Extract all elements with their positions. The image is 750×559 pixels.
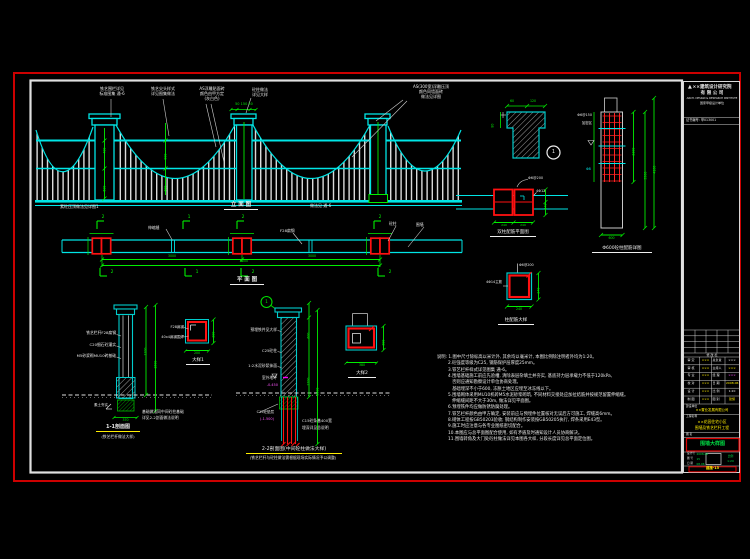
cad-viewport: 铁艺围栏详见 标准图集 通-6 铁艺尖头样式 详见图集做法 AS浮雕贴面砖 颜色… bbox=[0, 0, 750, 559]
plan-mark-top-2: 1 bbox=[185, 215, 193, 220]
elev-label-3-line3: (灰白色) bbox=[190, 97, 234, 102]
s22-below-1: C15砼垫层 bbox=[240, 410, 274, 414]
sign-value-3: ××× bbox=[701, 374, 711, 377]
ce-dim-b: 600 bbox=[601, 237, 622, 241]
plan-note-col: 砼柱 bbox=[389, 222, 407, 226]
s22-below-2: (-1.500) bbox=[240, 417, 274, 421]
s22-level-mark: -0.450 bbox=[252, 383, 278, 387]
elev-dim-h1: 400 bbox=[103, 148, 107, 154]
plan-title: 平 面 图 bbox=[230, 277, 264, 285]
fence-plan bbox=[62, 221, 462, 276]
sign-rlabel-5: 比 例 bbox=[713, 390, 725, 393]
ce-note-3: Φ8 bbox=[586, 168, 598, 172]
s22-title: 2-2剖面图(中间砼柱做法大样) bbox=[246, 447, 342, 454]
d2-dim-r: 380 bbox=[382, 340, 386, 346]
sign-rlabel-1: 总负责 bbox=[713, 359, 725, 362]
d3-dim-b: 240 bbox=[508, 308, 530, 312]
s22-dim-v2: 2700 bbox=[307, 378, 311, 386]
plan-note-mid: F28扁钢 bbox=[280, 229, 308, 233]
sign-rvalue-4: 2008.06 bbox=[726, 382, 738, 385]
rebar-plan bbox=[456, 180, 568, 225]
notes-line-1: 2.砼强度等级为C25, 钢筋保护层厚度25mm。 bbox=[448, 362, 537, 367]
s22-callout-number: 1 bbox=[263, 300, 270, 305]
s11-dim-b: 370 bbox=[114, 419, 137, 423]
sign-value-2: ××× bbox=[701, 367, 711, 370]
notes-line-11: 9.施工时应注意与各专业图纸密切配合。 bbox=[448, 425, 525, 430]
coping-callout-number: 1 bbox=[548, 150, 559, 156]
institute-name-2: 有 限 公 司 bbox=[686, 91, 738, 96]
column-rebar-elevation bbox=[588, 96, 656, 237]
rp-dim-r: 240 bbox=[544, 204, 548, 210]
sign-value-6: ××× bbox=[701, 398, 711, 401]
sign-rlabel-3: 经 理 bbox=[713, 374, 725, 377]
s22-label-4: 室外地坪 bbox=[221, 376, 277, 380]
notes-line-2: 3.铁艺栏杆样式详见图集 通-6。 bbox=[448, 369, 509, 374]
d1-title: 大样1 bbox=[186, 358, 210, 365]
ce-note-2: 加密区 bbox=[568, 122, 592, 126]
sign-rvalue-3: ××× bbox=[726, 374, 738, 377]
coping-dim-l: 80 bbox=[491, 124, 495, 128]
plan-mark-top-3: 2 bbox=[239, 215, 247, 220]
sign-label-4: 校 对 bbox=[688, 382, 699, 385]
elev-dim-m1: 900 bbox=[164, 154, 168, 160]
tbl-scale-label: 比例 bbox=[723, 455, 738, 458]
plan-joint-note: 伸缩缝 bbox=[148, 226, 182, 230]
s11-below-note: 素土夯实 bbox=[94, 403, 118, 407]
tbl-label-3: 日 期 bbox=[687, 463, 696, 466]
s11-title: 1-1剖面图 bbox=[96, 425, 140, 432]
notes-line-8: 6.预埋铁件均应做防锈防腐处理。 bbox=[448, 406, 512, 411]
rp-note-1: Φ6@200 bbox=[528, 176, 554, 180]
rp-dim-b1: 240 bbox=[496, 224, 512, 227]
d2-title: 大样2 bbox=[348, 371, 376, 378]
sheet-number: 建施-15 bbox=[689, 467, 736, 471]
s11-label-2: C20细石砼灌实 bbox=[52, 343, 116, 347]
s11-label-3: M5砂浆砌MU10砖基础 bbox=[40, 354, 116, 358]
d3-note-2: 4Φ14主筋 bbox=[470, 281, 502, 285]
s11-label-1: 铁艺栏杆F28扁钢 bbox=[52, 331, 116, 335]
elev-label-2-line2: 详见图集做法 bbox=[140, 92, 186, 97]
rp-title: 双柱配筋平面图 bbox=[490, 230, 536, 237]
d1-dim-r: 200 bbox=[212, 332, 216, 338]
sign-label-2: 审 核 bbox=[688, 367, 699, 370]
notes-line-6: 5.围墙砌体采用MU10机砖M5水泥砂浆砌筑, 不同材料交接处应加拉结筋并按规范… bbox=[448, 394, 628, 399]
d1-dim-b: 200 bbox=[188, 352, 206, 356]
d3-note-1: Φ6@200 bbox=[519, 264, 545, 268]
ce-dim-r2: 3500 bbox=[644, 172, 648, 180]
s22-label-3: 1:2水泥砂浆抹面 bbox=[221, 364, 277, 368]
column-section-detail bbox=[503, 264, 541, 309]
elev-dim-m2: 300 bbox=[164, 186, 168, 192]
sign-rvalue-1: ××× bbox=[726, 359, 738, 362]
tbl-label-1: 设计号 bbox=[687, 453, 696, 456]
s22-note-2: 埋深详见总说明 bbox=[302, 426, 352, 430]
sign-rlabel-6: 图 别 bbox=[713, 398, 725, 401]
project-label: 工程名称 bbox=[686, 415, 738, 418]
plan-mark-top-1: 2 bbox=[99, 215, 107, 220]
elev-label-5-line3: 做法见详图 bbox=[396, 95, 466, 100]
elev-ground-note: 素砼压顶做法见详图1 bbox=[60, 205, 142, 210]
plan-dim-1: 3000 bbox=[160, 255, 184, 259]
sign-label-5: 设 计 bbox=[688, 390, 699, 393]
plan-mark-bot-1: 2 bbox=[108, 270, 116, 275]
sign-label-1: 审 定 bbox=[688, 359, 699, 362]
coping-dim-a: 60 bbox=[505, 100, 519, 104]
s22-dim-v3: 3300 bbox=[316, 388, 320, 396]
plan-note-wall: 围墙 bbox=[416, 223, 434, 227]
sign-rlabel-4: 日 期 bbox=[713, 382, 725, 385]
project-name-2: 围墙及铁艺栏杆工程 bbox=[686, 426, 738, 430]
sign-value-1: ××× bbox=[701, 359, 711, 362]
s11-note-2: 详见2-2剖面做法说明 bbox=[142, 416, 214, 420]
institute-name-1: ××建筑设计研究院 bbox=[686, 85, 738, 90]
detail-2 bbox=[345, 314, 386, 365]
d3-dim-r: 240 bbox=[537, 288, 541, 294]
d3-title: 柱配筋大样 bbox=[498, 318, 534, 325]
tbl-scale-value: 1:20 bbox=[723, 460, 738, 463]
plan-mark-bot-4: 2 bbox=[386, 270, 394, 275]
coping-dim-b: 120 bbox=[525, 100, 541, 104]
rp-dim-b2: 240 bbox=[515, 224, 531, 227]
s11-note-1: 基础做法同中间砼柱基础 bbox=[142, 410, 214, 414]
ce-note-1: Φ6@150 bbox=[568, 114, 592, 118]
sign-rlabel-2: 主持人 bbox=[713, 367, 725, 370]
sign-label-3: 专 业 bbox=[688, 374, 699, 377]
project-name-1: ××花园住宅小区 bbox=[686, 420, 738, 424]
ce-title: Φ600砼柱配筋详图 bbox=[592, 246, 652, 253]
elev-label-4-line2: 详见大样 bbox=[243, 93, 277, 98]
sign-value-5: ××× bbox=[701, 390, 711, 393]
elev-cap-dim: 50 150 50 bbox=[229, 102, 259, 106]
institute-cert: 国家甲级设计单位 bbox=[686, 102, 738, 105]
plan-mark-bot-3: 2 bbox=[249, 270, 257, 275]
s11-subtitle: (铁艺栏杆做法大样) bbox=[88, 435, 148, 439]
s11-dim-v2: 1500 bbox=[154, 361, 158, 369]
notes-line-4: 否则应通知勘察设计单位协商处理。 bbox=[448, 381, 521, 386]
cad-sheet-linework bbox=[0, 0, 750, 559]
drawing-name: 围墙大样图 bbox=[687, 442, 738, 448]
owner-name: ××置业发展有限公司 bbox=[686, 409, 738, 413]
revision-header: 修 改 栏 bbox=[686, 354, 738, 357]
sign-rvalue-5: 1:20 bbox=[726, 390, 738, 393]
tbl-value-2: 15 bbox=[697, 458, 707, 461]
notes-line-13: 11.围墙转角及大门处砼柱做法详见本图各大样, 分段长度详见总平面定位图。 bbox=[448, 438, 595, 443]
rp-note-2: 4Φ12 bbox=[536, 189, 558, 193]
s22-label-1: 预埋铁件见大样 bbox=[221, 328, 277, 332]
ce-dim-r1: 2100 bbox=[632, 148, 636, 156]
elevation-title: 立 面 图 bbox=[224, 202, 258, 210]
ce-dim-r3: 4100 bbox=[653, 166, 657, 174]
sign-label-6: 制 图 bbox=[688, 398, 699, 401]
sign-rvalue-2: ××× bbox=[726, 367, 738, 370]
s22-note-1: C15砼条基400宽 bbox=[302, 419, 352, 423]
tbl-value-1: 2008-06 bbox=[697, 453, 707, 456]
notes-line-9: 7.铁艺栏杆颜色由甲方确定, 安装前应与预埋件位置核对无误后方可施工, 焊缝高6… bbox=[448, 413, 615, 418]
sign-value-4: ××× bbox=[701, 382, 711, 385]
plan-mark-bot-2: 1 bbox=[193, 270, 201, 275]
notes-line-12: 10.本图应与总平面图配合使用, 如有矛盾及时通知设计人员协商解决。 bbox=[448, 432, 582, 437]
s22-subtit le: (铁艺栏杆与砼柱做法需根据现场实际情况予以调整) bbox=[234, 456, 352, 460]
elev-right-note: 做法见 通-6 bbox=[310, 204, 360, 209]
license-number: 证书编号: 甲013001 bbox=[686, 119, 738, 123]
elev-label-1-line2: 标准图集 通-6 bbox=[90, 92, 134, 97]
plan-dim-2: 3000 bbox=[300, 255, 324, 259]
d1-label-1: F28扁钢 bbox=[144, 325, 184, 329]
plan-dim-3: 6000 bbox=[232, 260, 256, 264]
s11-dim-v1: 1200 bbox=[144, 348, 148, 356]
notes-line-5: 基础埋深不小于600, 冻胀土地区应埋至冰冻线以下。 bbox=[448, 388, 553, 393]
d2-dim-b: 380 bbox=[352, 364, 372, 368]
tbl-label-2: 图 号 bbox=[687, 458, 696, 461]
fence-elevation bbox=[35, 98, 462, 206]
d1-label-2: 40x4扁钢围焊 bbox=[140, 335, 184, 339]
tbl-value-3: 08.06 bbox=[697, 463, 707, 466]
plan-mark-top-4: 2 bbox=[376, 215, 384, 220]
s22-dim-v1: 600 bbox=[307, 333, 311, 339]
s22-label-2: C25砼柱 bbox=[221, 349, 277, 353]
elev-dim-h2: 600 bbox=[103, 186, 107, 192]
drawing-name-label: 图 名 bbox=[686, 433, 738, 436]
sign-rvalue-6: 建施 bbox=[726, 398, 738, 401]
